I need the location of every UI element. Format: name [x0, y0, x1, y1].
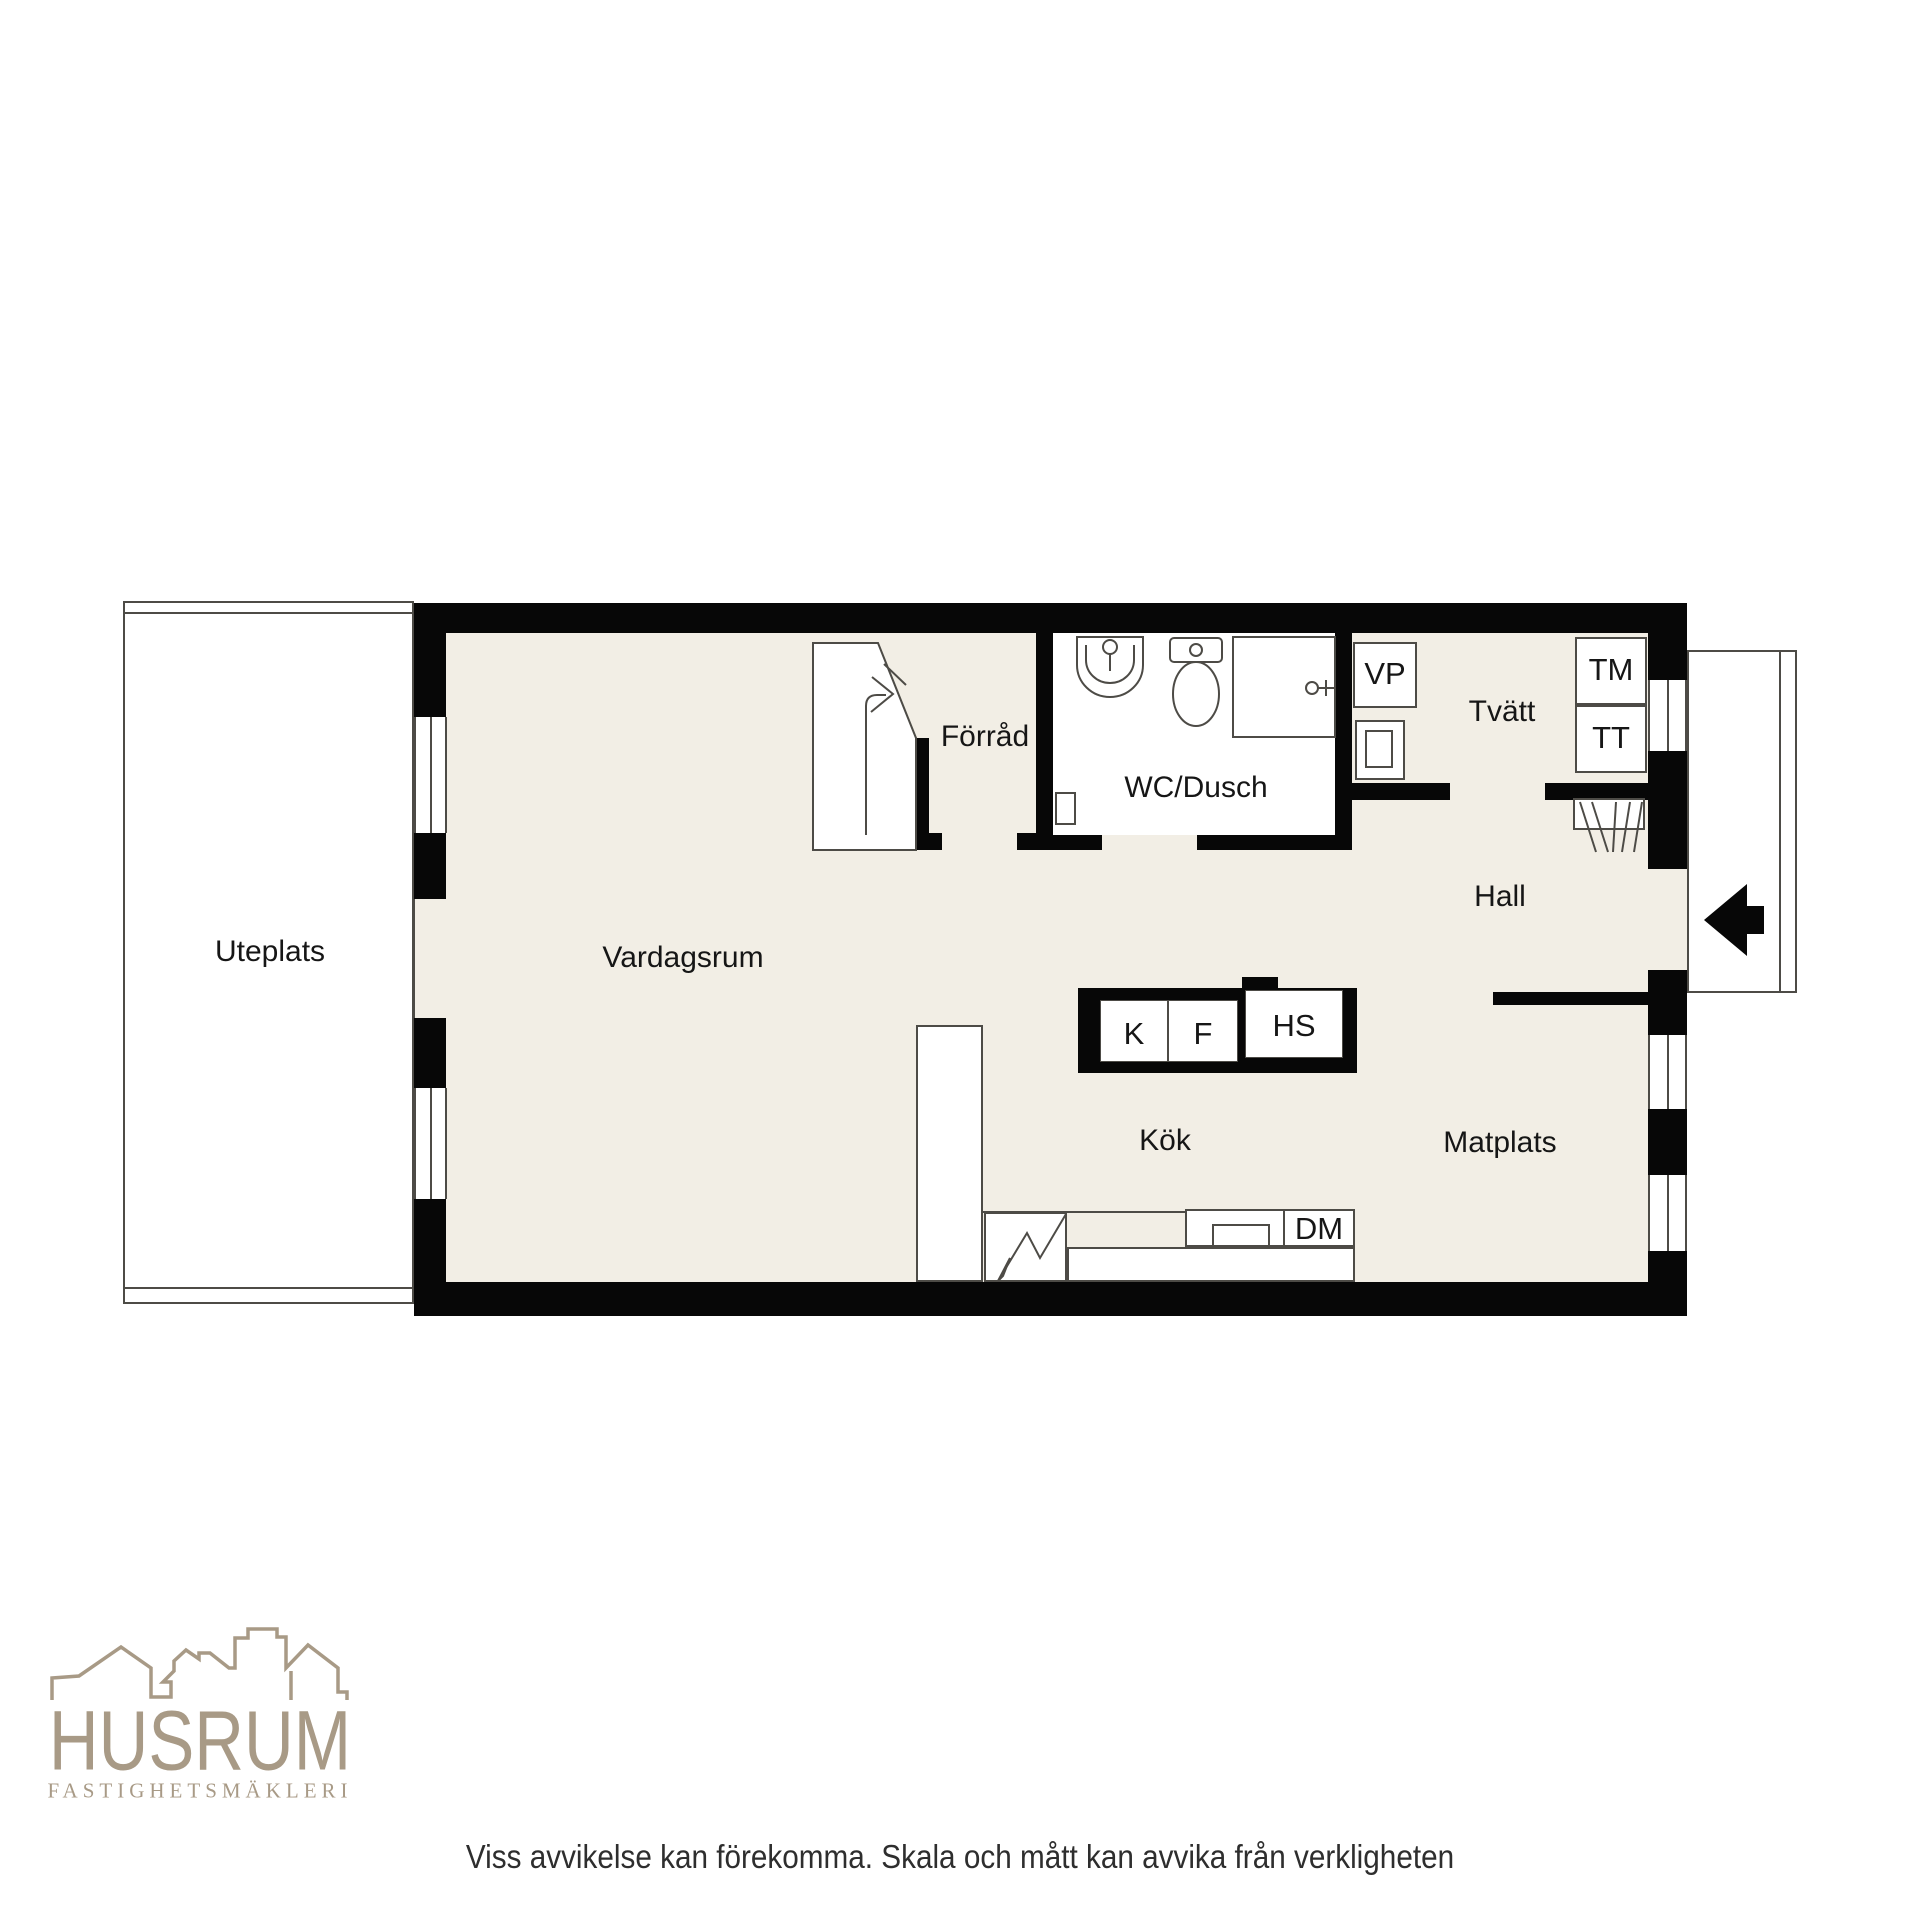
logo-wordmark: HUSRUM — [49, 1693, 351, 1790]
window-right-1 — [1648, 680, 1687, 751]
coat-rack-box — [1573, 798, 1645, 830]
label-dm: DM — [1295, 1211, 1343, 1247]
label-matplats: Matplats — [1443, 1126, 1556, 1160]
entry-porch-outline — [1687, 650, 1797, 993]
floorplan-canvas: Uteplats Vardagsrum Förråd WC/Dusch VP T… — [0, 0, 1920, 1920]
label-kok: Kök — [1139, 1124, 1191, 1158]
label-f: F — [1194, 1016, 1213, 1052]
window-right-3 — [1648, 1175, 1687, 1251]
utility-box-inner — [1365, 730, 1393, 768]
wall-stair-stub — [916, 738, 929, 833]
disclaimer-text: Viss avvikelse kan förekomma. Skala och … — [466, 1838, 1454, 1876]
logo-tagline: FASTIGHETSMÄKLERI — [47, 1779, 352, 1804]
wall-stair-stub-foot — [916, 833, 942, 850]
fridge-freezer-box — [1100, 1000, 1238, 1062]
porch-edge-line — [1779, 652, 1781, 991]
window-left-2 — [414, 1088, 447, 1199]
fridge-freezer-divider — [1167, 1001, 1169, 1061]
label-tvatt: Tvätt — [1469, 695, 1536, 729]
entrance-door-opening — [1648, 869, 1687, 970]
wall-wc-right — [1335, 633, 1352, 850]
patio-door-opening — [413, 899, 447, 1018]
window-right-2 — [1648, 1035, 1687, 1109]
label-wc-dusch: WC/Dusch — [1124, 771, 1267, 805]
label-tt: TT — [1592, 720, 1630, 756]
label-uteplats: Uteplats — [215, 935, 325, 969]
wall-wc-bottom-left — [1017, 833, 1102, 850]
label-forrad: Förråd — [941, 720, 1029, 754]
counter-edge-line — [983, 1211, 1185, 1213]
stove-box — [984, 1212, 1067, 1282]
patio-edge-line-top — [125, 612, 412, 614]
label-tm: TM — [1589, 652, 1634, 688]
label-hs: HS — [1272, 1008, 1315, 1044]
kitchen-counter-lower — [1067, 1247, 1355, 1282]
kitchen-sink — [1212, 1224, 1270, 1249]
logo-skyline-icon — [52, 1629, 347, 1700]
wall-wc-bottom-right — [1197, 833, 1352, 850]
label-vp: VP — [1364, 656, 1405, 692]
label-k: K — [1124, 1016, 1145, 1052]
wc-floor-drain — [1055, 792, 1076, 825]
wall-wc-left — [1036, 633, 1053, 833]
kitchen-tall-unit — [916, 1025, 983, 1282]
wall-tvatt-hall-left — [1352, 783, 1450, 800]
window-left-1 — [414, 717, 447, 833]
patio-edge-line-bottom — [125, 1287, 412, 1289]
half-wall-matplats — [1493, 992, 1648, 1005]
label-hall: Hall — [1474, 880, 1526, 914]
label-vardagsrum: Vardagsrum — [602, 941, 763, 975]
utility-box — [1355, 720, 1405, 780]
dishwasher-divider — [1283, 1211, 1285, 1245]
